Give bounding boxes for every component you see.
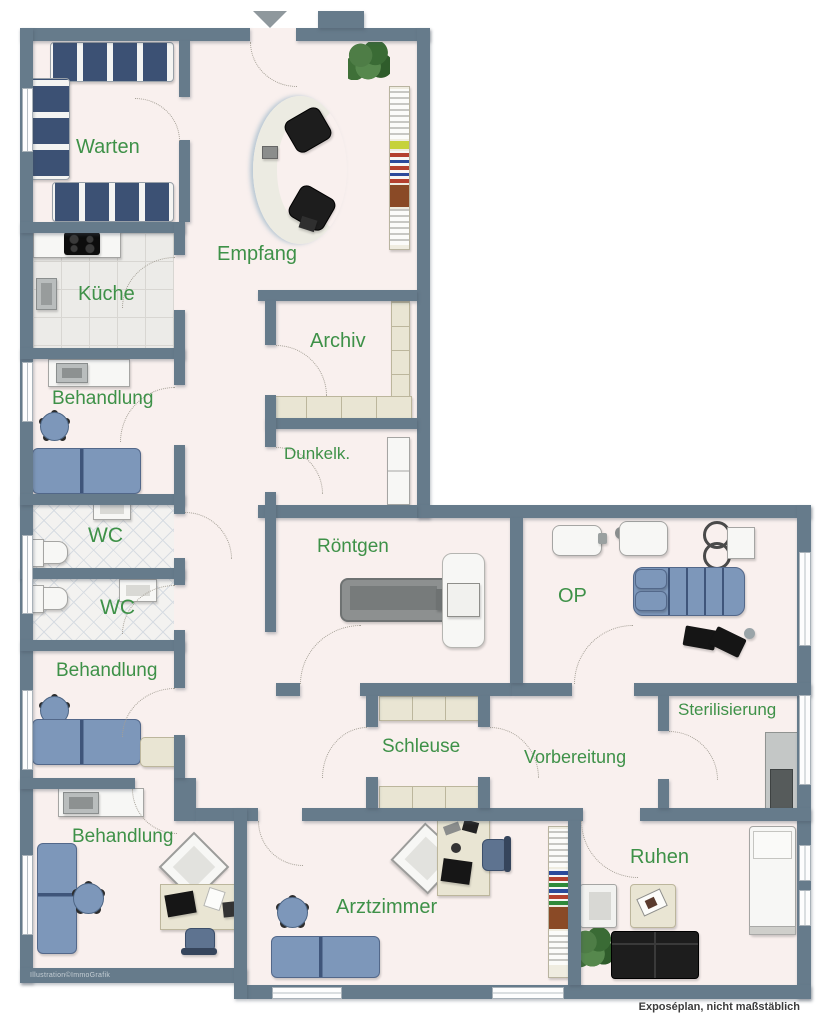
wall-archiv-dunkelkammer — [265, 418, 417, 429]
wall-schleuse-right-b — [478, 777, 490, 808]
doctor-bookshelf — [548, 826, 569, 978]
op-trolley-1-handle — [598, 533, 607, 544]
treatment1-sink — [56, 363, 88, 383]
darkroom-cabinet — [387, 437, 410, 505]
wall-corridor-left-b — [174, 310, 185, 385]
doctor-office-chair-back — [504, 836, 511, 872]
wall-corridor-left-f — [174, 735, 185, 778]
wall-warten-kueche — [20, 222, 185, 233]
wall-op-bottom-b — [634, 683, 811, 696]
treatment3-stool — [73, 883, 104, 914]
wall-archiv-top — [258, 290, 417, 301]
archive-shelf-right — [391, 301, 410, 399]
op-trolley-2 — [619, 521, 668, 556]
xray-detector — [447, 583, 480, 617]
scale-disclaimer: Exposéplan, nicht maßstäblich — [500, 1001, 800, 1013]
room-label-op: OP — [558, 585, 587, 608]
wall-top-right — [296, 28, 430, 41]
doctor-laptop — [441, 858, 473, 885]
room-label-behandlung3: Behandlung — [72, 826, 173, 848]
window-wc — [22, 535, 33, 614]
wall-bottomband-top-c — [640, 808, 811, 821]
xray-table — [340, 578, 451, 622]
wc1-toilet-bowl — [43, 541, 68, 564]
window-ruhen-2 — [799, 890, 811, 926]
wall-behandlung3-arztzimmer — [234, 808, 247, 999]
wall-schleuse-right-a — [478, 696, 490, 727]
wall-roentgen-bottom-b — [360, 683, 512, 696]
wall-kueche-behandlung1 — [20, 348, 185, 359]
doctor-treatment-table — [271, 936, 380, 978]
wall-op-bottom-a — [512, 683, 572, 696]
wall-wc1-wc2 — [20, 568, 185, 579]
wall-corridor-corner — [174, 778, 196, 821]
wall-wc2-behandlung2 — [20, 640, 185, 651]
op-light-knob — [744, 628, 755, 639]
wall-dunkelkammer-roentgen — [258, 505, 417, 518]
op-trolley-1 — [552, 525, 602, 556]
room-label-behandlung1: Behandlung — [52, 388, 153, 410]
window-op — [799, 552, 811, 646]
room-label-behandlung2: Behandlung — [56, 660, 157, 682]
wall-behandlung1-wc1 — [20, 494, 185, 505]
room-label-wc2: WC — [100, 596, 135, 620]
floor-plan: Warten Küche Empfang Archiv Dunkelk. Beh… — [0, 0, 831, 1024]
treatment3-office-chair-back — [181, 948, 217, 955]
waiting-couch-left — [30, 78, 70, 180]
wall-vorbereitung-sterilisierung-a — [658, 696, 669, 731]
room-label-vorbereitung: Vorbereitung — [524, 747, 626, 768]
entrance-arrow-icon — [253, 11, 287, 28]
wall-roentgen-left — [265, 492, 276, 632]
wall-left — [20, 28, 33, 983]
window-ruhen-1 — [799, 845, 811, 881]
wall-behandlung2-bottom — [20, 778, 135, 789]
room-label-schleuse: Schleuse — [382, 736, 460, 758]
wall-bottomband-top-b — [302, 808, 583, 821]
wall-mid-top — [417, 505, 811, 518]
wc2-toilet-bowl — [43, 587, 68, 610]
sterilizer-door — [770, 769, 793, 810]
treatment3-sink — [63, 792, 99, 814]
op-chair-leg-pad-bottom — [635, 591, 667, 611]
window-behandlung1 — [22, 362, 33, 422]
room-label-roentgen: Röntgen — [317, 536, 389, 558]
wall-roentgen-op — [510, 518, 523, 683]
room-label-empfang: Empfang — [217, 243, 297, 266]
room-label-sterilisierung: Sterilisierung — [678, 700, 776, 720]
doctor-stool — [277, 897, 308, 928]
treatment1-table — [32, 448, 141, 494]
doctor-desk-lamp — [451, 843, 461, 853]
wall-corridor-left-d — [174, 558, 185, 585]
reception-monitor — [262, 146, 278, 159]
wall-roentgen-bottom-a — [276, 683, 300, 696]
window-sterilisierung — [799, 695, 811, 785]
rest-bed-pillow — [753, 831, 792, 859]
room-label-ruhen: Ruhen — [630, 846, 689, 869]
op-stand-tray — [727, 527, 755, 559]
rest-armchair — [580, 884, 617, 928]
wall-right-top-wing — [417, 28, 430, 518]
wall-arztzimmer-ruhen — [568, 821, 581, 985]
wall-corridor-left-e — [174, 630, 185, 688]
reception-filing-shelf — [389, 86, 410, 250]
rest-bed-foot — [749, 926, 796, 935]
room-label-arztzimmer: Arztzimmer — [336, 896, 437, 919]
rest-sofa — [611, 931, 699, 979]
wall-corridor-left-c — [174, 445, 185, 514]
waiting-chairs-top — [50, 42, 174, 82]
wall-archiv-left-b — [265, 395, 276, 447]
treatment1-stool — [40, 412, 69, 441]
room-label-archiv: Archiv — [310, 330, 366, 353]
window-behandlung3 — [22, 855, 33, 935]
cooktop — [64, 232, 100, 255]
wall-vorbereitung-sterilisierung-b — [658, 779, 669, 808]
wall-top-left — [20, 28, 250, 41]
room-label-warten: Warten — [76, 136, 140, 159]
wall-archiv-left-a — [265, 301, 276, 345]
waiting-chairs-bottom — [52, 182, 174, 222]
airlock-cabinet-top — [379, 696, 480, 721]
wall-top-bump — [318, 11, 364, 28]
wall-bottomband-top-a — [196, 808, 258, 821]
wall-schleuse-left-a — [366, 696, 378, 727]
treatment3-table — [37, 843, 77, 954]
wall-warten-empfang-a — [179, 41, 190, 97]
window-warten — [22, 88, 33, 152]
room-label-dunkelkammer: Dunkelk. — [284, 444, 350, 464]
room-label-wc1: WC — [88, 524, 123, 548]
op-chair-leg-pad-top — [635, 569, 667, 589]
kitchen-sink — [36, 278, 57, 310]
plant-icon — [348, 42, 390, 80]
wall-schleuse-left-b — [366, 777, 378, 808]
wall-warten-empfang-b — [179, 140, 190, 222]
window-arztzimmer-2 — [492, 987, 564, 999]
window-arztzimmer-1 — [272, 987, 342, 999]
room-label-kueche: Küche — [78, 283, 135, 306]
wall-corridor-left-a — [174, 222, 185, 255]
window-behandlung2 — [22, 690, 33, 770]
illustrator-credit: Illustration©ImmoGrafik — [30, 972, 110, 979]
